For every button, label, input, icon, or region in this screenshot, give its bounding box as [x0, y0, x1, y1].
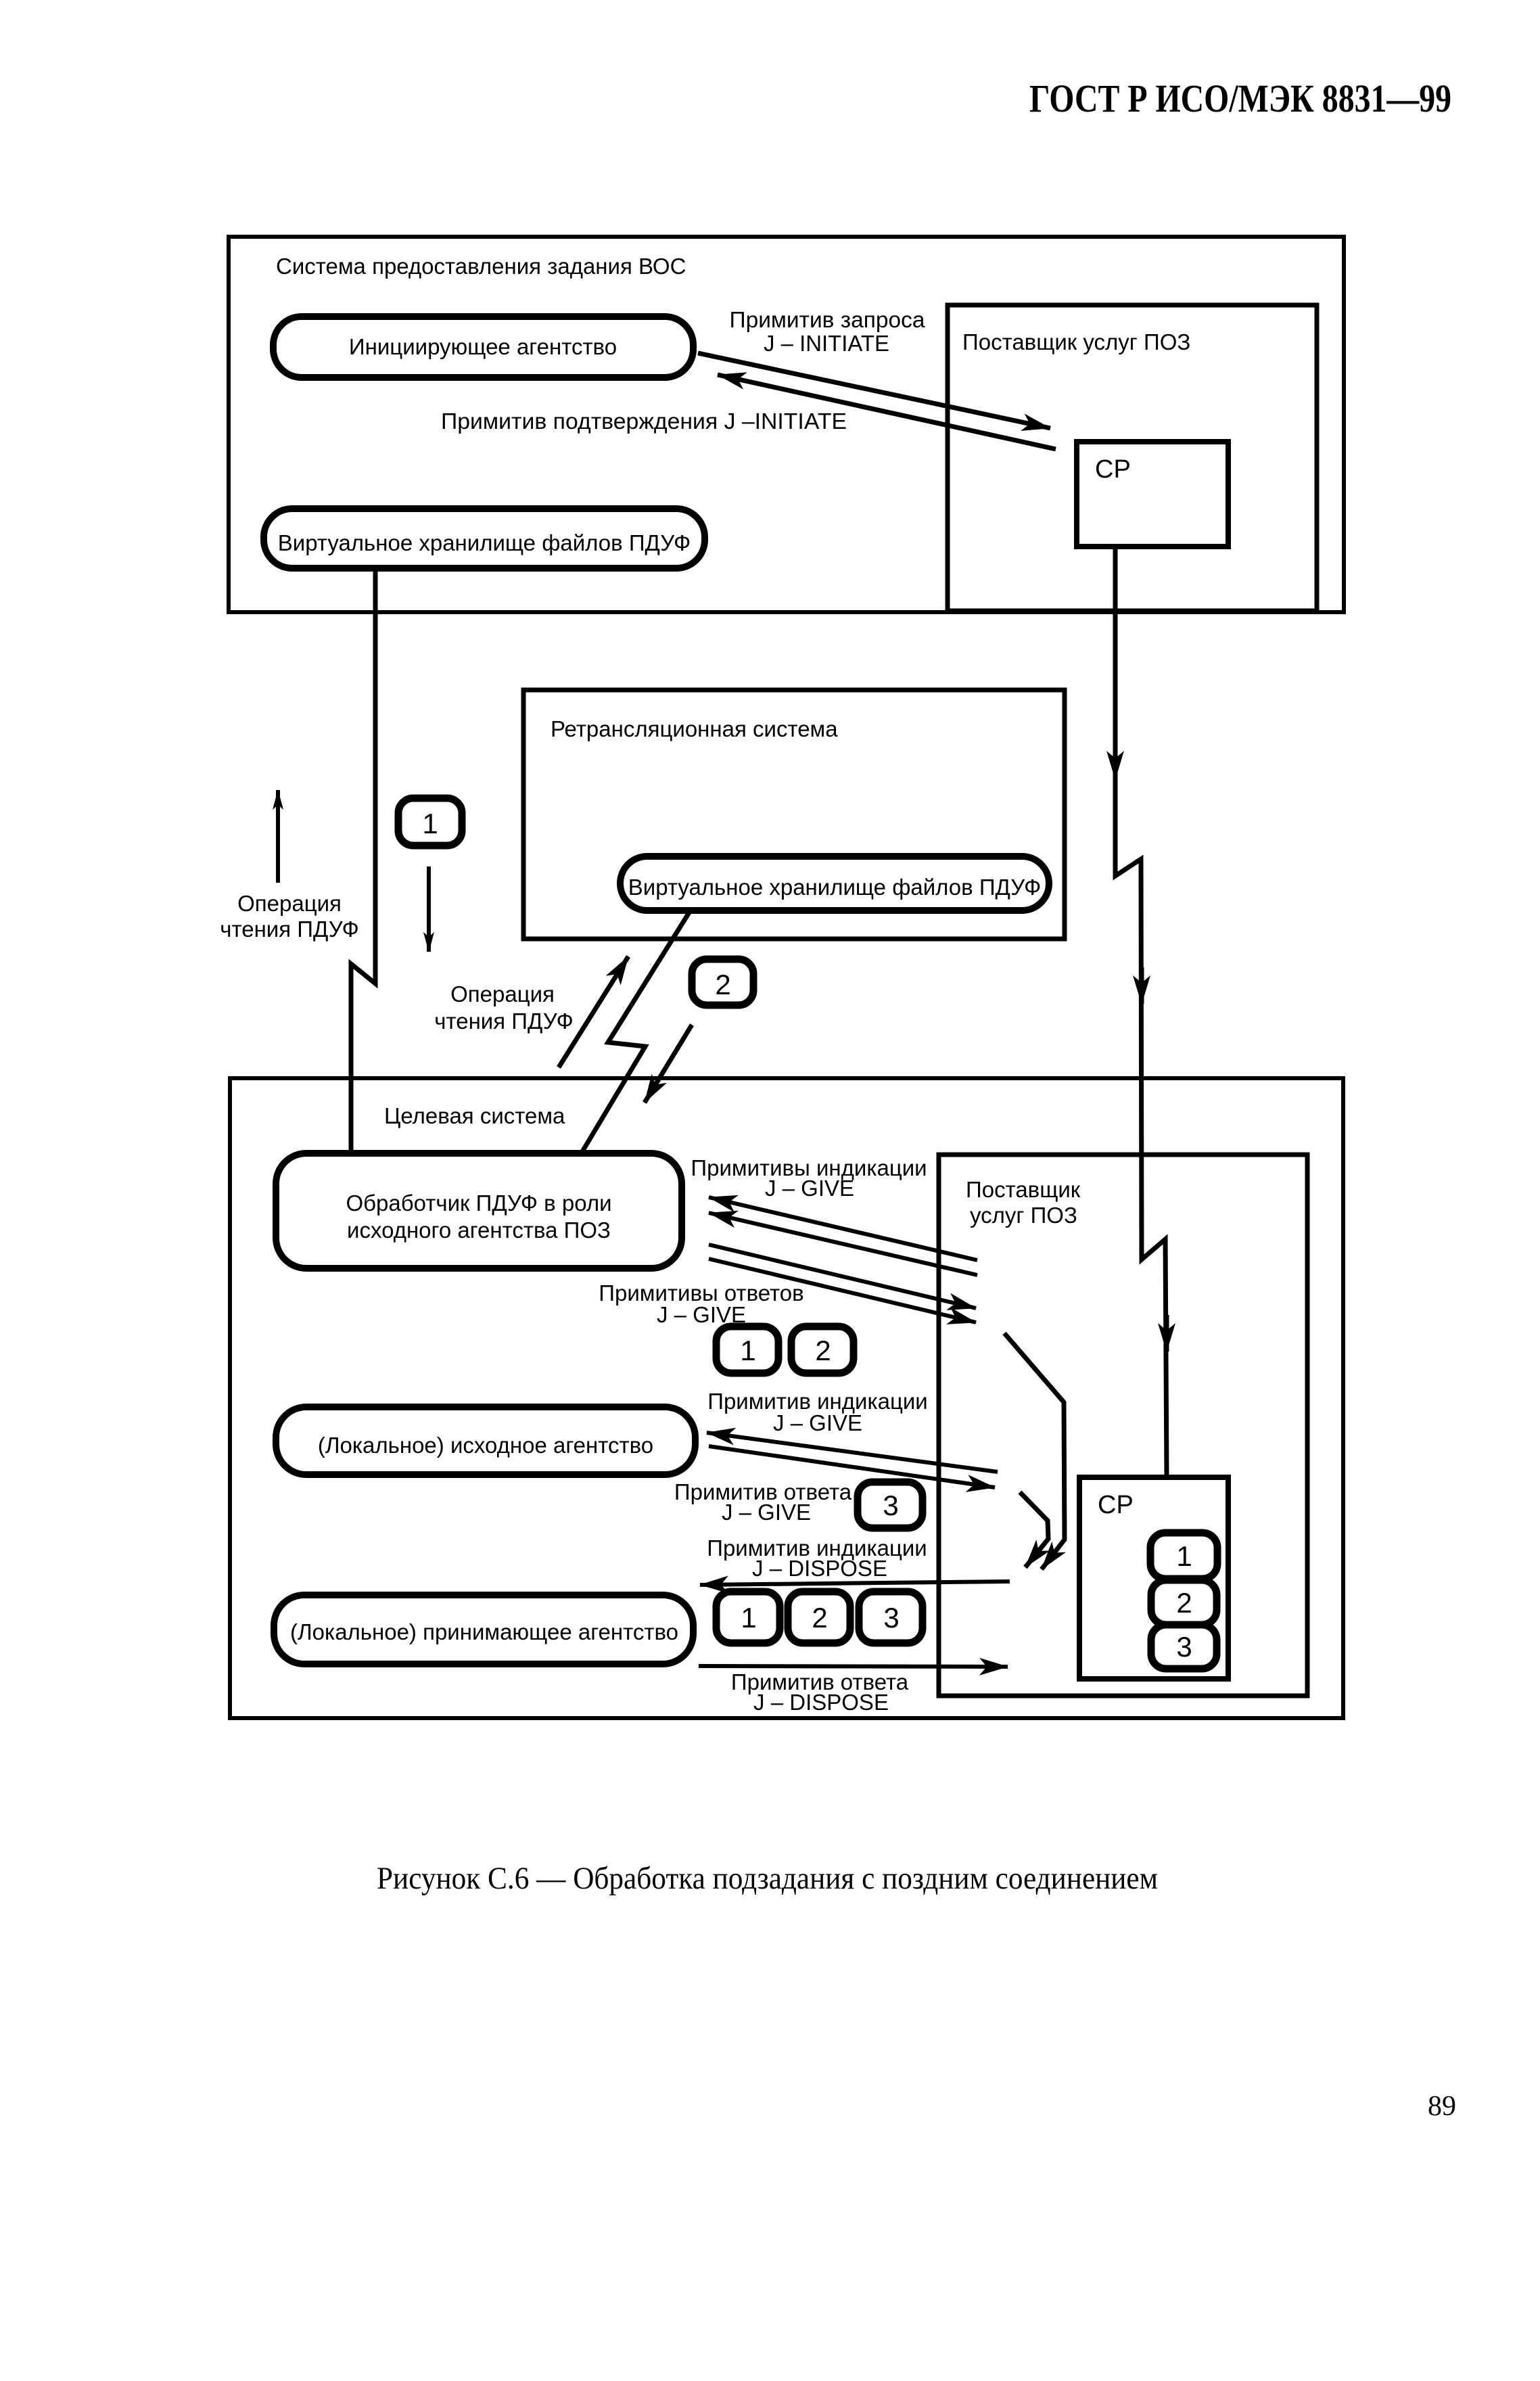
svg-text:2: 2: [815, 1335, 831, 1366]
svg-text:J – DISPOSE: J – DISPOSE: [753, 1690, 889, 1715]
svg-text:3: 3: [883, 1489, 898, 1521]
svg-text:СР: СР: [1095, 455, 1131, 484]
svg-text:1: 1: [1176, 1540, 1192, 1572]
svg-text:1: 1: [741, 1602, 756, 1634]
svg-text:3: 3: [1176, 1631, 1192, 1663]
svg-text:1: 1: [740, 1335, 755, 1366]
svg-text:чтения ПДУФ: чтения ПДУФ: [434, 1009, 573, 1034]
svg-text:(Локальное) исходное агентство: (Локальное) исходное агентство: [318, 1433, 653, 1458]
svg-text:3: 3: [883, 1602, 899, 1634]
svg-text:исходного агентства ПОЗ: исходного агентства ПОЗ: [347, 1218, 611, 1243]
svg-text:Система предоставления задания: Система предоставления задания ВОС: [276, 254, 686, 279]
svg-text:Ретрансляционная система: Ретрансляционная система: [551, 716, 838, 741]
svg-text:услуг ПОЗ: услуг ПОЗ: [970, 1203, 1077, 1228]
svg-text:J – DISPOSE: J – DISPOSE: [752, 1556, 887, 1581]
svg-text:Инициирующее агентство: Инициирующее агентство: [349, 334, 617, 359]
svg-text:Целевая система: Целевая система: [384, 1103, 565, 1128]
svg-text:Рисунок С.6 — Обработка подзад: Рисунок С.6 — Обработка подзадания с поз…: [377, 1861, 1158, 1896]
svg-text:J – INITIATE: J – INITIATE: [764, 331, 889, 356]
svg-text:(Локальное) принимающее агентс: (Локальное) принимающее агентство: [290, 1619, 678, 1644]
svg-text:Виртуальное хранилище файлов П: Виртуальное хранилище файлов ПДУФ: [628, 875, 1041, 900]
svg-text:Поставщик: Поставщик: [966, 1177, 1081, 1202]
svg-text:J – GIVE: J – GIVE: [722, 1500, 811, 1525]
svg-text:89: 89: [1428, 2091, 1456, 2122]
svg-text:Обработчик ПДУФ в роли: Обработчик ПДУФ в роли: [346, 1190, 611, 1216]
svg-text:ГОСТ Р ИСО/МЭК 8831—99: ГОСТ Р ИСО/МЭК 8831—99: [1029, 76, 1451, 120]
svg-text:Операция: Операция: [237, 891, 342, 916]
svg-text:J – GIVE: J – GIVE: [765, 1176, 854, 1201]
svg-text:2: 2: [1176, 1587, 1192, 1619]
svg-text:Примитив подтверждения J –INI: Примитив подтверждения J –INITIATE: [441, 409, 847, 434]
svg-text:J – GIVE: J – GIVE: [773, 1410, 862, 1435]
svg-text:2: 2: [812, 1602, 827, 1634]
svg-text:Операция: Операция: [450, 981, 555, 1007]
svg-text:чтения ПДУФ: чтения ПДУФ: [220, 917, 358, 942]
svg-text:1: 1: [422, 808, 438, 839]
svg-text:СР: СР: [1098, 1491, 1134, 1519]
svg-text:Поставщик услуг ПОЗ: Поставщик услуг ПОЗ: [962, 329, 1190, 354]
svg-text:Примитив запроса: Примитив запроса: [730, 307, 926, 332]
svg-text:2: 2: [715, 969, 730, 1000]
svg-text:Виртуальное хранилище файлов П: Виртуальное хранилище файлов ПДУФ: [278, 530, 691, 555]
